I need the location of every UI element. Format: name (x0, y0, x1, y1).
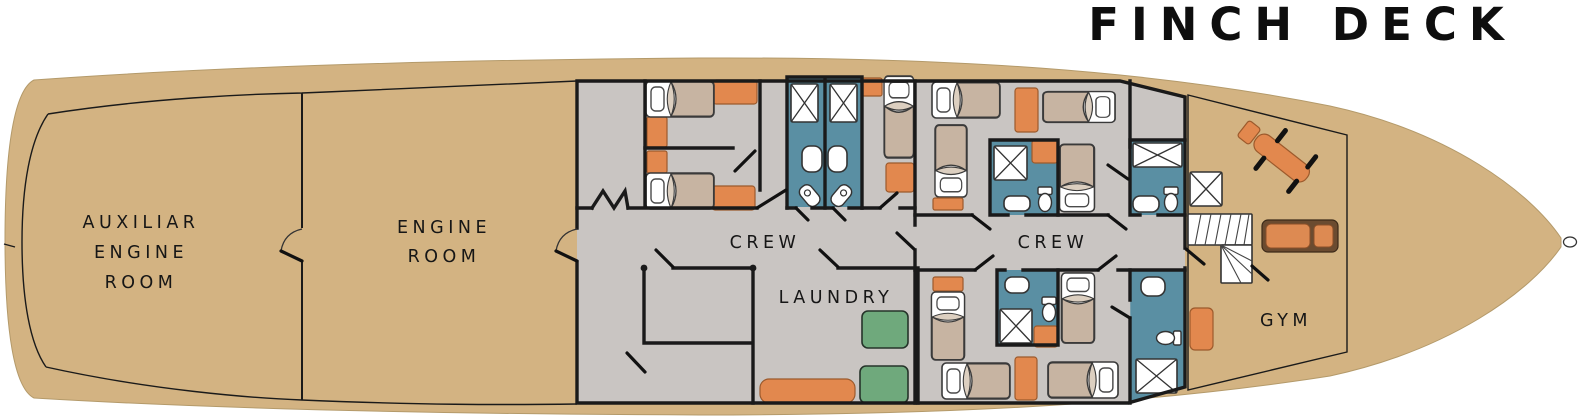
aux-engine-room-label-line2: ENGINE (94, 243, 188, 263)
nightstand-icon (647, 117, 667, 147)
shower-icon (1190, 172, 1222, 206)
dresser-icon (933, 198, 963, 210)
shower-icon (1133, 143, 1182, 167)
shower-icon (1000, 309, 1032, 343)
toilet-icon (802, 146, 822, 172)
dresser-icon (1032, 140, 1058, 163)
crew-starboard-label: CREW (1018, 233, 1089, 253)
bed-icon (1048, 362, 1118, 398)
bed-icon (646, 173, 714, 209)
counter-icon (760, 379, 855, 403)
toilet-icon (1157, 331, 1182, 345)
washer-icon (862, 311, 908, 348)
toilet-icon (828, 146, 847, 172)
aux-engine-room-label-line1: AUXILIAR (83, 213, 200, 233)
sink-icon (1133, 196, 1159, 212)
shower-icon (830, 84, 857, 122)
gym-label: GYM (1260, 311, 1312, 331)
aux-engine-room-label-line3: ROOM (105, 273, 178, 293)
deck-title: FINCH DECK (1088, 0, 1516, 51)
shower-icon (1136, 359, 1177, 393)
toilet-icon (1038, 187, 1052, 212)
engine-room-label-line1: ENGINE (397, 218, 491, 238)
deckhouse-floor (577, 81, 1185, 403)
engine-room-label-line2: ROOM (408, 247, 481, 267)
dresser-icon (886, 163, 914, 192)
dresser-icon (933, 277, 963, 291)
sink-icon (1005, 277, 1029, 293)
nightstand-icon (647, 151, 667, 173)
toilet-icon (1042, 297, 1056, 322)
sink-icon (1004, 196, 1030, 211)
bed-icon (884, 76, 914, 158)
treadmill-icon (1262, 220, 1338, 252)
dresser-icon (713, 80, 757, 104)
bow-tip-fitting (1564, 237, 1577, 247)
crew-port-label: CREW (730, 233, 801, 253)
deck-plan-page: FINCH DECK AUXILIAR ENGINE ROOM ENGINE R… (0, 0, 1580, 417)
bed-icon (1060, 144, 1095, 211)
bed-icon (1061, 273, 1094, 343)
bed-icon (931, 292, 964, 360)
bed-icon (942, 363, 1010, 399)
bed-icon (1043, 92, 1115, 123)
bed-icon (932, 82, 1000, 118)
shower-icon (994, 146, 1027, 180)
finch-deck-plan: FINCH DECK AUXILIAR ENGINE ROOM ENGINE R… (0, 0, 1580, 417)
bed-icon (646, 81, 714, 117)
bed-icon (935, 125, 967, 197)
washer-icon (860, 366, 908, 403)
mat-icon (1190, 308, 1213, 350)
laundry-label: LAUNDRY (779, 288, 894, 308)
toilet-icon (1164, 187, 1178, 212)
sink-icon (1141, 277, 1165, 296)
shower-icon (791, 84, 818, 122)
dresser-icon (1015, 88, 1038, 132)
dresser-icon (1015, 357, 1037, 400)
